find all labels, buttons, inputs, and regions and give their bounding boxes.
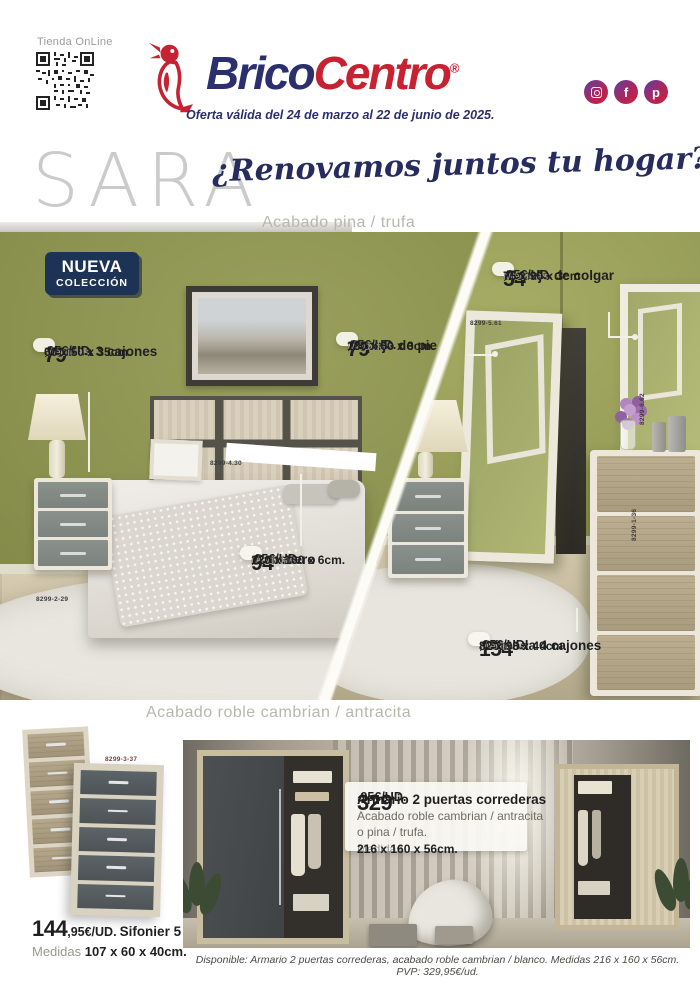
badge-line1: NUEVA <box>49 257 135 277</box>
store-online-label: Tienda OnLine <box>37 36 113 48</box>
connector-dot <box>632 334 638 340</box>
small-picture-frame <box>149 439 202 481</box>
drawer <box>392 514 464 543</box>
ref-code-hanging-mirror: 8299-6.62 <box>639 393 646 425</box>
campaign-tagline: ¿Renovamos juntos tu hogar? <box>212 142 683 189</box>
facebook-icon[interactable]: f <box>614 80 638 104</box>
ref-code-sifonier: 8299-3-37 <box>105 756 137 763</box>
dimensions-value: 82 x 98 x 40cm. <box>479 639 566 653</box>
wardrobe-photo: 329,95€/UD. Armario 2 puertas correderas… <box>183 740 690 948</box>
dimensions-value: 216 x 160 x 56cm. <box>357 842 458 856</box>
ref-code-standing-mirror: 8299-5.61 <box>470 320 502 327</box>
drawer <box>79 798 156 824</box>
callout-connector <box>608 336 634 338</box>
callout-connector <box>608 312 610 338</box>
callout-connector <box>88 392 90 472</box>
dimensions-value: 60 x 50 x 35cm. <box>44 345 131 359</box>
drawer <box>77 884 154 910</box>
instagram-icon[interactable] <box>584 80 608 104</box>
hanging-clothes <box>578 810 588 866</box>
price-callout-mesilla: 79,95€/UD.Mesilla 3 cajones Medidas 60 x… <box>33 338 55 352</box>
sifonier-product-shot: 8299-3-37 <box>10 726 182 926</box>
dimensions-value: 107 x 60 x 40cm. <box>85 944 187 959</box>
drawer <box>38 482 108 508</box>
catalog-page: Tienda OnLine BricoCentro® Oferta válida… <box>0 0 700 990</box>
wall-art <box>186 286 318 386</box>
drawer <box>392 545 464 574</box>
hanging-clothes <box>592 810 601 860</box>
callout-connector <box>468 354 494 356</box>
badge-line2: COLECCIÓN <box>49 277 135 289</box>
price-callout-espejo-colgar: 54,95€/UD.Espejo de colgar Medidas 75 x … <box>492 262 514 276</box>
drawer <box>38 511 108 537</box>
dimensions-value: 75 x 90 x 3cm <box>503 269 580 283</box>
brand-logo: BricoCentro® Oferta válida del 24 de mar… <box>148 38 578 138</box>
bedroom-photo: NUEVA COLECCIÓN 79,95€/UD.Mesilla 3 cajo… <box>0 232 700 700</box>
logo-centro: Centro <box>314 47 450 99</box>
ref-code-comoda: 8299-1-36 <box>631 509 638 541</box>
registered-mark: ® <box>450 61 458 76</box>
finish-label-pine-truffle: Acabado pina / trufa <box>262 214 415 232</box>
social-icons: f p <box>584 80 668 104</box>
standing-mirror <box>458 310 563 563</box>
cosmetic-jar <box>652 422 666 452</box>
camera-glyph <box>591 87 602 98</box>
vase <box>620 420 636 450</box>
plant <box>655 858 690 938</box>
availability-footnote: Disponible: Armario 2 puertas correderas… <box>185 954 690 978</box>
lamp-left <box>28 394 86 440</box>
shelf-box <box>578 781 612 793</box>
pillow <box>328 480 360 498</box>
ref-code-headboard: 8299-4.30 <box>210 460 242 467</box>
dimensions-value: 120 x 160 x 6cm. <box>251 553 345 567</box>
dimensions-value: 180 x 60 x 3cm. <box>347 339 434 353</box>
drawer <box>38 540 108 566</box>
price-callout-comoda: 154,95€/UD.Cómoda 4 cajones Medidas 82 x… <box>468 632 490 646</box>
brand-name: BricoCentro® <box>206 46 457 100</box>
price-unit: ,95€/UD. <box>67 925 116 939</box>
nightstand-left <box>34 478 112 570</box>
drawer <box>597 635 695 691</box>
shelf-box <box>578 881 610 895</box>
qr-code[interactable] <box>36 52 94 110</box>
price-value: 144 <box>32 916 67 941</box>
shelf-box <box>293 771 332 784</box>
drawer <box>597 456 695 512</box>
ref-code-nightstand: 8299-2-29 <box>36 596 68 603</box>
chest-of-drawers <box>590 450 700 696</box>
logo-brico: Brico <box>206 47 314 99</box>
lamp-base <box>418 452 433 478</box>
hanging-clothes <box>308 814 321 869</box>
connector-dot <box>492 351 498 357</box>
drawer <box>597 516 695 572</box>
lamp-base <box>49 440 65 478</box>
finish-label-oak-anthracite: Acabado roble cambrian / antracita <box>146 704 411 722</box>
price-callout-cabecero: 94,95€/UD.Cabecero Medidas 120 x 160 x 6… <box>240 546 262 560</box>
callout-connector <box>300 474 302 546</box>
facebook-glyph: f <box>624 85 628 100</box>
cosmetic-jar <box>668 416 686 452</box>
price-callout-espejo-pie: 79,95€/UD.Espejo de pie Medidas 180 x 60… <box>336 332 358 346</box>
storage-box <box>369 924 417 946</box>
storage-box <box>435 926 473 944</box>
penguin-logo-icon <box>148 40 202 116</box>
armario-info-box: 329,95€/UD. Armario 2 puertas correderas… <box>345 782 527 851</box>
pinterest-glyph: p <box>652 85 660 100</box>
drawer <box>27 732 84 759</box>
callout-connector <box>576 608 578 632</box>
new-collection-badge: NUEVA COLECCIÓN <box>45 252 139 295</box>
shelf-box <box>295 792 329 801</box>
plant <box>183 862 225 942</box>
finish-line2: o pina / trufa. <box>357 825 515 839</box>
mirror-reflection <box>638 303 682 401</box>
drawer <box>78 855 155 881</box>
dimensions-label: Medidas <box>32 944 81 959</box>
drawer <box>79 827 156 853</box>
shelf-box <box>293 894 329 910</box>
drawer <box>80 770 157 796</box>
drawer <box>597 575 695 631</box>
pinterest-icon[interactable]: p <box>644 80 668 104</box>
hanging-clothes <box>291 814 305 876</box>
sifonier-anthracite <box>70 763 164 917</box>
price-unit: ,95€/UD. <box>357 790 406 804</box>
offer-validity-text: Oferta válida del 24 de marzo al 22 de j… <box>186 108 494 122</box>
